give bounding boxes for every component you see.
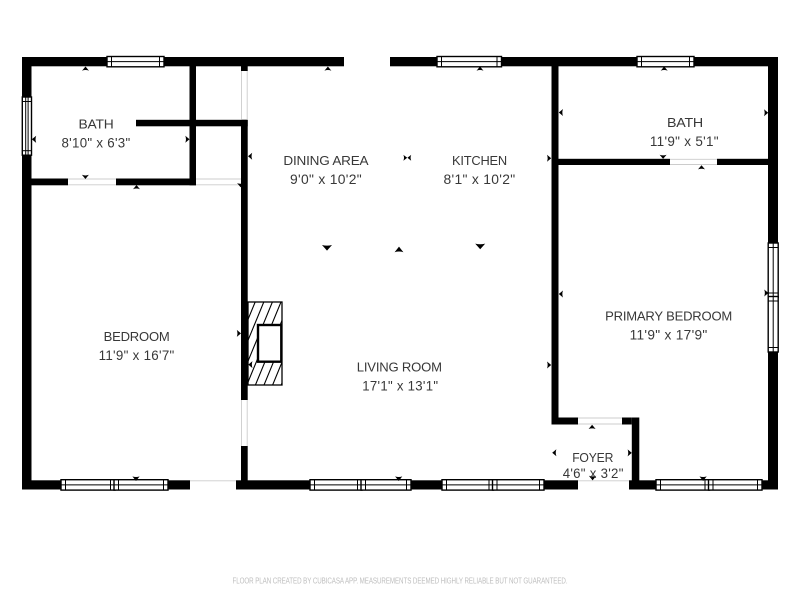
svg-text:9'0" x 10'2": 9'0" x 10'2" xyxy=(290,172,362,187)
svg-text:BATH: BATH xyxy=(79,117,114,132)
svg-text:FOYER: FOYER xyxy=(572,450,613,465)
svg-text:FLOOR PLAN CREATED BY CUBICASA: FLOOR PLAN CREATED BY CUBICASA APP. MEAS… xyxy=(233,577,568,586)
svg-text:PRIMARY BEDROOM: PRIMARY BEDROOM xyxy=(605,308,732,323)
svg-text:11'9" x 5'1": 11'9" x 5'1" xyxy=(650,134,719,149)
svg-text:KITCHEN: KITCHEN xyxy=(452,153,507,168)
svg-text:BEDROOM: BEDROOM xyxy=(104,329,170,344)
svg-text:BATH: BATH xyxy=(667,115,703,130)
svg-text:8'1" x 10'2": 8'1" x 10'2" xyxy=(444,172,516,187)
svg-text:11'9" x 17'9": 11'9" x 17'9" xyxy=(630,327,708,342)
svg-text:4'6" x 3'2": 4'6" x 3'2" xyxy=(563,466,624,481)
svg-text:DINING AREA: DINING AREA xyxy=(283,153,368,168)
svg-text:8'10" x 6'3": 8'10" x 6'3" xyxy=(62,136,131,151)
svg-text:LIVING ROOM: LIVING ROOM xyxy=(357,359,442,374)
svg-text:17'1" x 13'1": 17'1" x 13'1" xyxy=(362,379,438,394)
svg-text:11'9" x 16'7": 11'9" x 16'7" xyxy=(99,348,175,363)
